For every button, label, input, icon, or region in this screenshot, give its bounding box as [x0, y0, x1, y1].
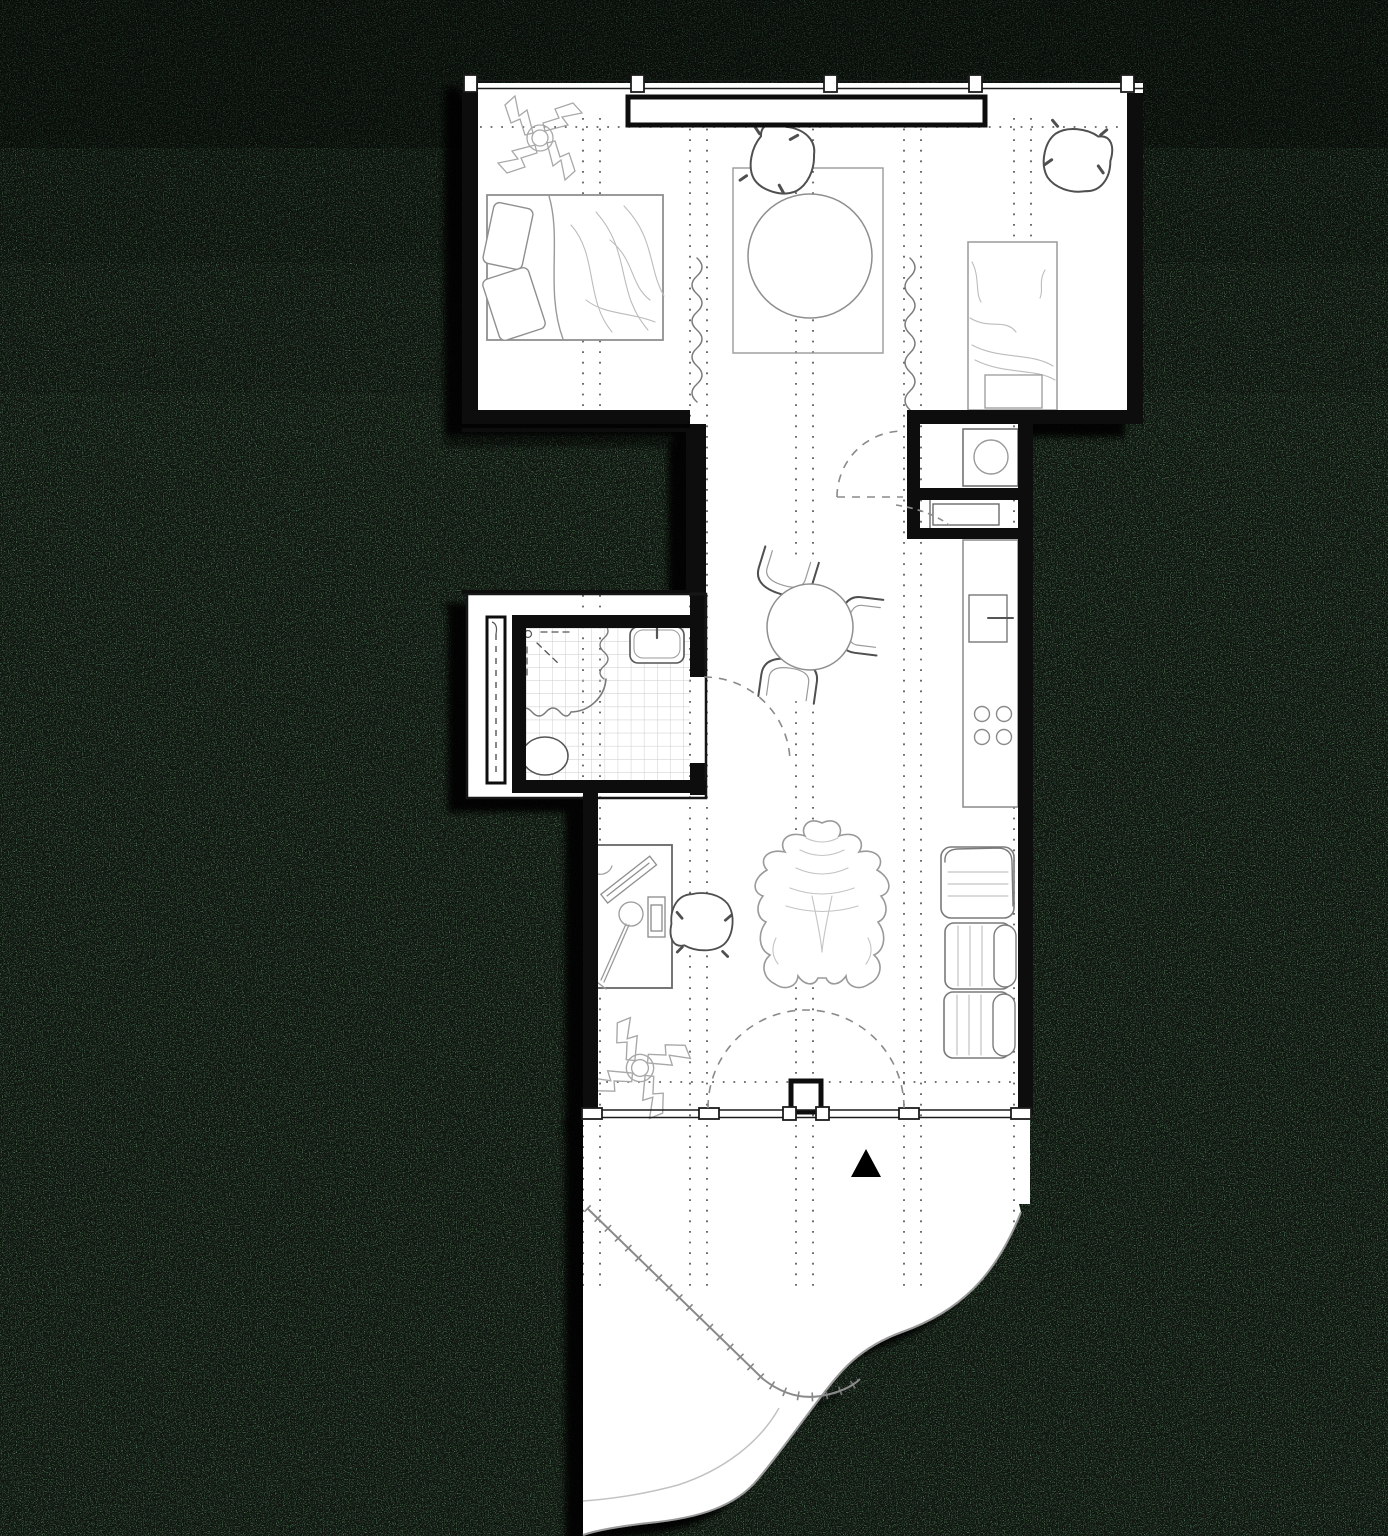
wall-bathroom-bottom [512, 780, 706, 793]
double-bed [481, 195, 664, 342]
wall-hall-left-upper [690, 424, 706, 677]
wall-bathroom-top [512, 615, 692, 628]
sofa-seat [944, 992, 1015, 1058]
wall-laundry-bottom [907, 528, 1033, 539]
wall-living-left [583, 793, 598, 1115]
bathroom-interior [518, 621, 690, 781]
kitchen-counter [963, 540, 1018, 807]
desk [595, 845, 672, 989]
wall-bedroom-left [462, 83, 478, 424]
dining-table [767, 584, 853, 670]
sofa-corner-seat [941, 847, 1014, 918]
sectional-sofa [941, 847, 1016, 1058]
floor-plan-svg [0, 0, 1388, 1536]
wall-bedroom-right [1127, 93, 1143, 424]
wardrobe [930, 500, 999, 528]
floor-plan-image [0, 0, 1388, 1536]
wall-laundry-divider [920, 488, 1018, 500]
wall-laundry-left [907, 424, 920, 538]
daybed [968, 242, 1057, 410]
washing-machine [963, 429, 1018, 486]
round-table [748, 194, 872, 318]
sofa-seat [945, 923, 1016, 989]
pocket-window [487, 617, 505, 783]
toilet [522, 737, 568, 775]
monitor [648, 897, 665, 937]
wall-bathroom-left [512, 615, 526, 793]
wall-right [1018, 412, 1033, 1115]
wall-bedroom-bottom-left [462, 410, 690, 424]
storage-cabinet [628, 97, 985, 125]
